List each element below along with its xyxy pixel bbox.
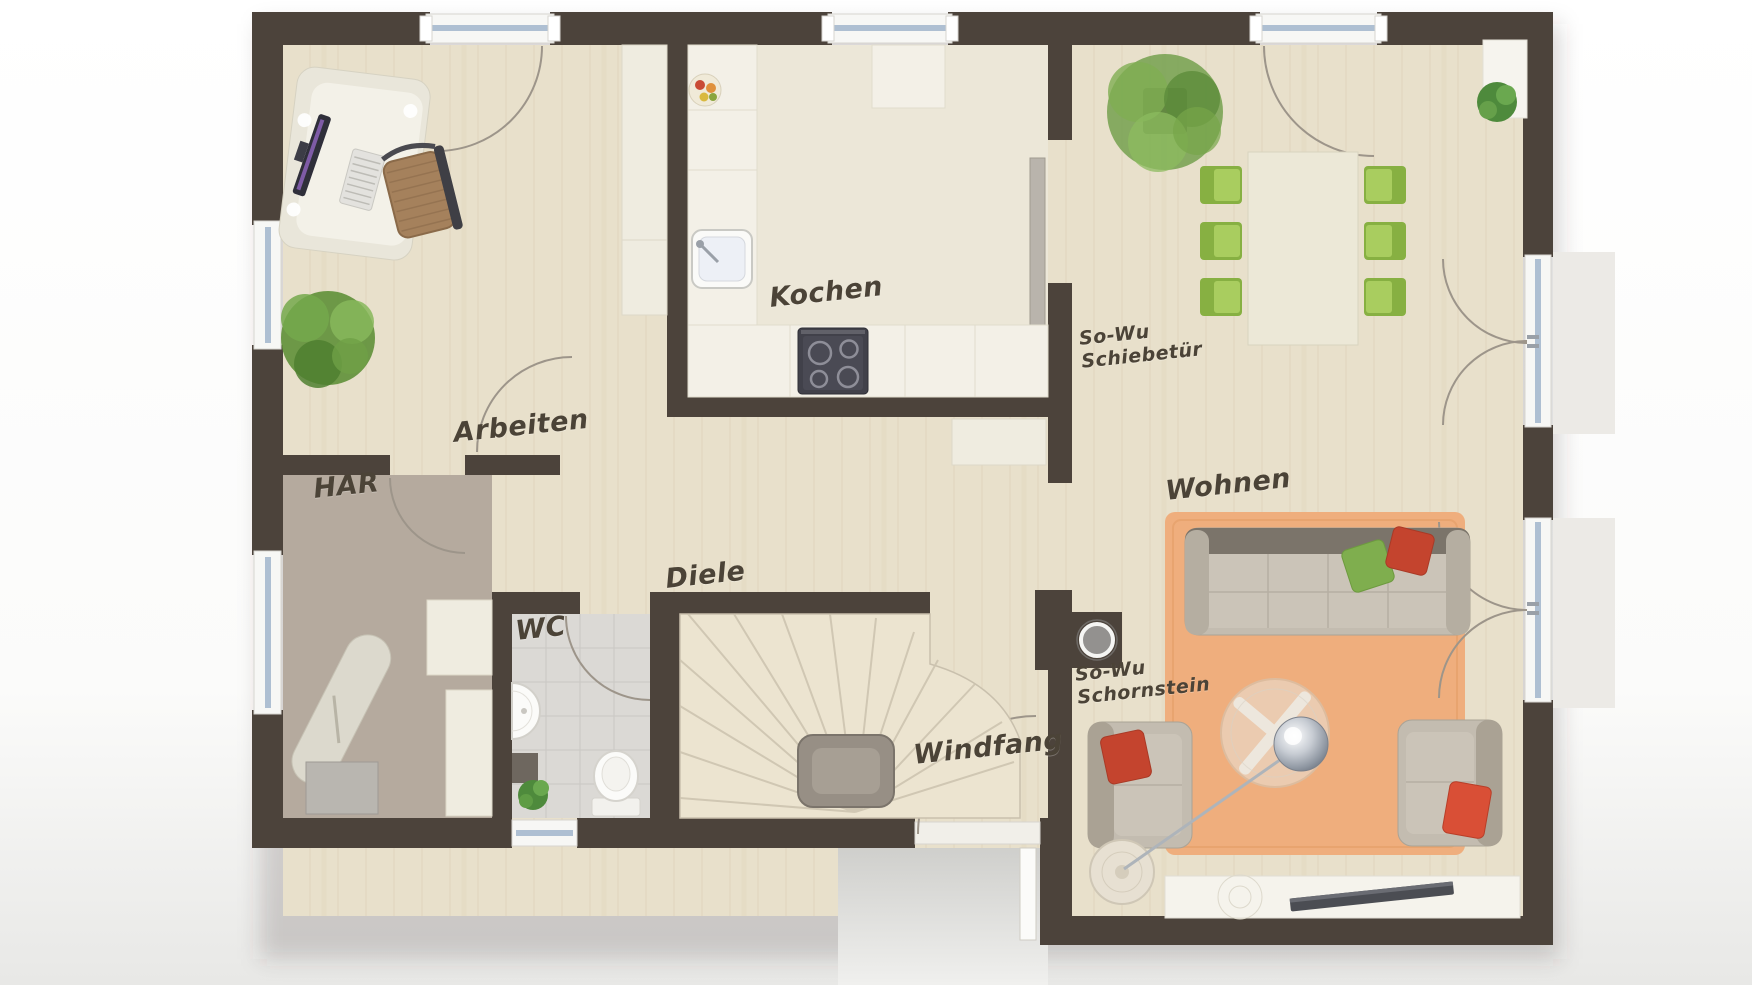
wardrobe-icon <box>622 45 667 315</box>
window-icon <box>822 14 958 43</box>
plant-icon <box>1477 82 1517 122</box>
window-icon <box>420 14 560 43</box>
washing-machine-icon <box>306 762 378 814</box>
shelf-icon <box>512 753 538 783</box>
stove-icon <box>798 328 868 394</box>
entrance-porch <box>838 848 1048 985</box>
window-icon <box>1250 14 1387 43</box>
tv-lowbo​ard-icon <box>1165 875 1520 919</box>
counter-icon <box>872 45 945 108</box>
window-icon <box>512 820 577 846</box>
fruit-bowl-icon <box>689 74 721 106</box>
terrace-pad <box>1553 252 1615 434</box>
dining-table-icon <box>1248 152 1358 345</box>
cabinet-icon <box>427 600 492 675</box>
armchair-icon <box>1398 720 1502 846</box>
terrace-pad <box>1553 518 1615 708</box>
room-label-wc: WC <box>514 611 568 647</box>
sofa-icon <box>1185 526 1470 635</box>
armchair-icon <box>1088 722 1192 848</box>
floorplan-canvas: Arbeiten Kochen HAR WC Diele Windfang Wo… <box>0 0 1752 985</box>
cabinet-icon <box>446 690 492 816</box>
sideboard-icon <box>952 419 1046 465</box>
floorplan-drawing <box>0 0 1752 985</box>
window-icon <box>254 551 281 714</box>
window-icon <box>254 221 281 349</box>
toilet-icon <box>592 751 640 816</box>
kitchen-sink-icon <box>692 230 752 288</box>
